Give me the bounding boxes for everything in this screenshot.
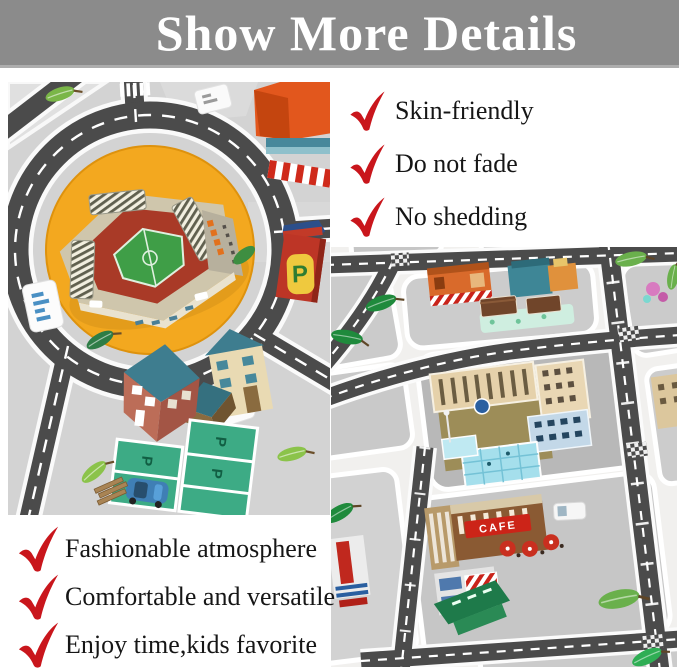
white-van [553,502,586,521]
playmat-photo-left: P [8,82,330,515]
feature-item: Comfortable and versatile [16,576,335,618]
feature-label: Enjoy time,kids favorite [65,630,317,660]
left-playmat-illustration: P [8,82,330,515]
playmat-photo-right: CAFE [331,247,677,667]
checkmark-icon [16,621,60,669]
checkmark-icon [16,525,60,573]
feature-item: Do not fade [348,143,534,185]
svg-text:P: P [211,436,229,448]
feature-label: Fashionable atmosphere [65,534,317,564]
banner: Show More Details [0,0,679,68]
feature-item: Fashionable atmosphere [16,528,335,570]
feature-list-bottom: Fashionable atmosphere Comfortable and v… [16,528,335,666]
feature-label: Comfortable and versatile [65,582,335,612]
feature-item: Skin-friendly [348,90,534,132]
banner-title: Show More Details [156,8,578,58]
checkmark-icon [16,573,60,621]
feature-label: Skin-friendly [395,96,534,126]
feature-label: Do not fade [395,149,518,179]
right-playmat-illustration: CAFE [331,247,677,667]
svg-text:P: P [207,467,225,479]
svg-text:P: P [137,455,155,467]
checkmark-icon [348,90,386,132]
feature-item: Enjoy time,kids favorite [16,624,335,666]
feature-label: No shedding [395,202,527,232]
parking-letter: P [292,261,309,289]
checkmark-icon [348,143,386,185]
feature-list-right: Skin-friendly Do not fade No shedding [348,90,534,238]
checkmark-icon [348,196,386,238]
feature-item: No shedding [348,196,534,238]
product-infographic: Show More Details [0,0,679,671]
